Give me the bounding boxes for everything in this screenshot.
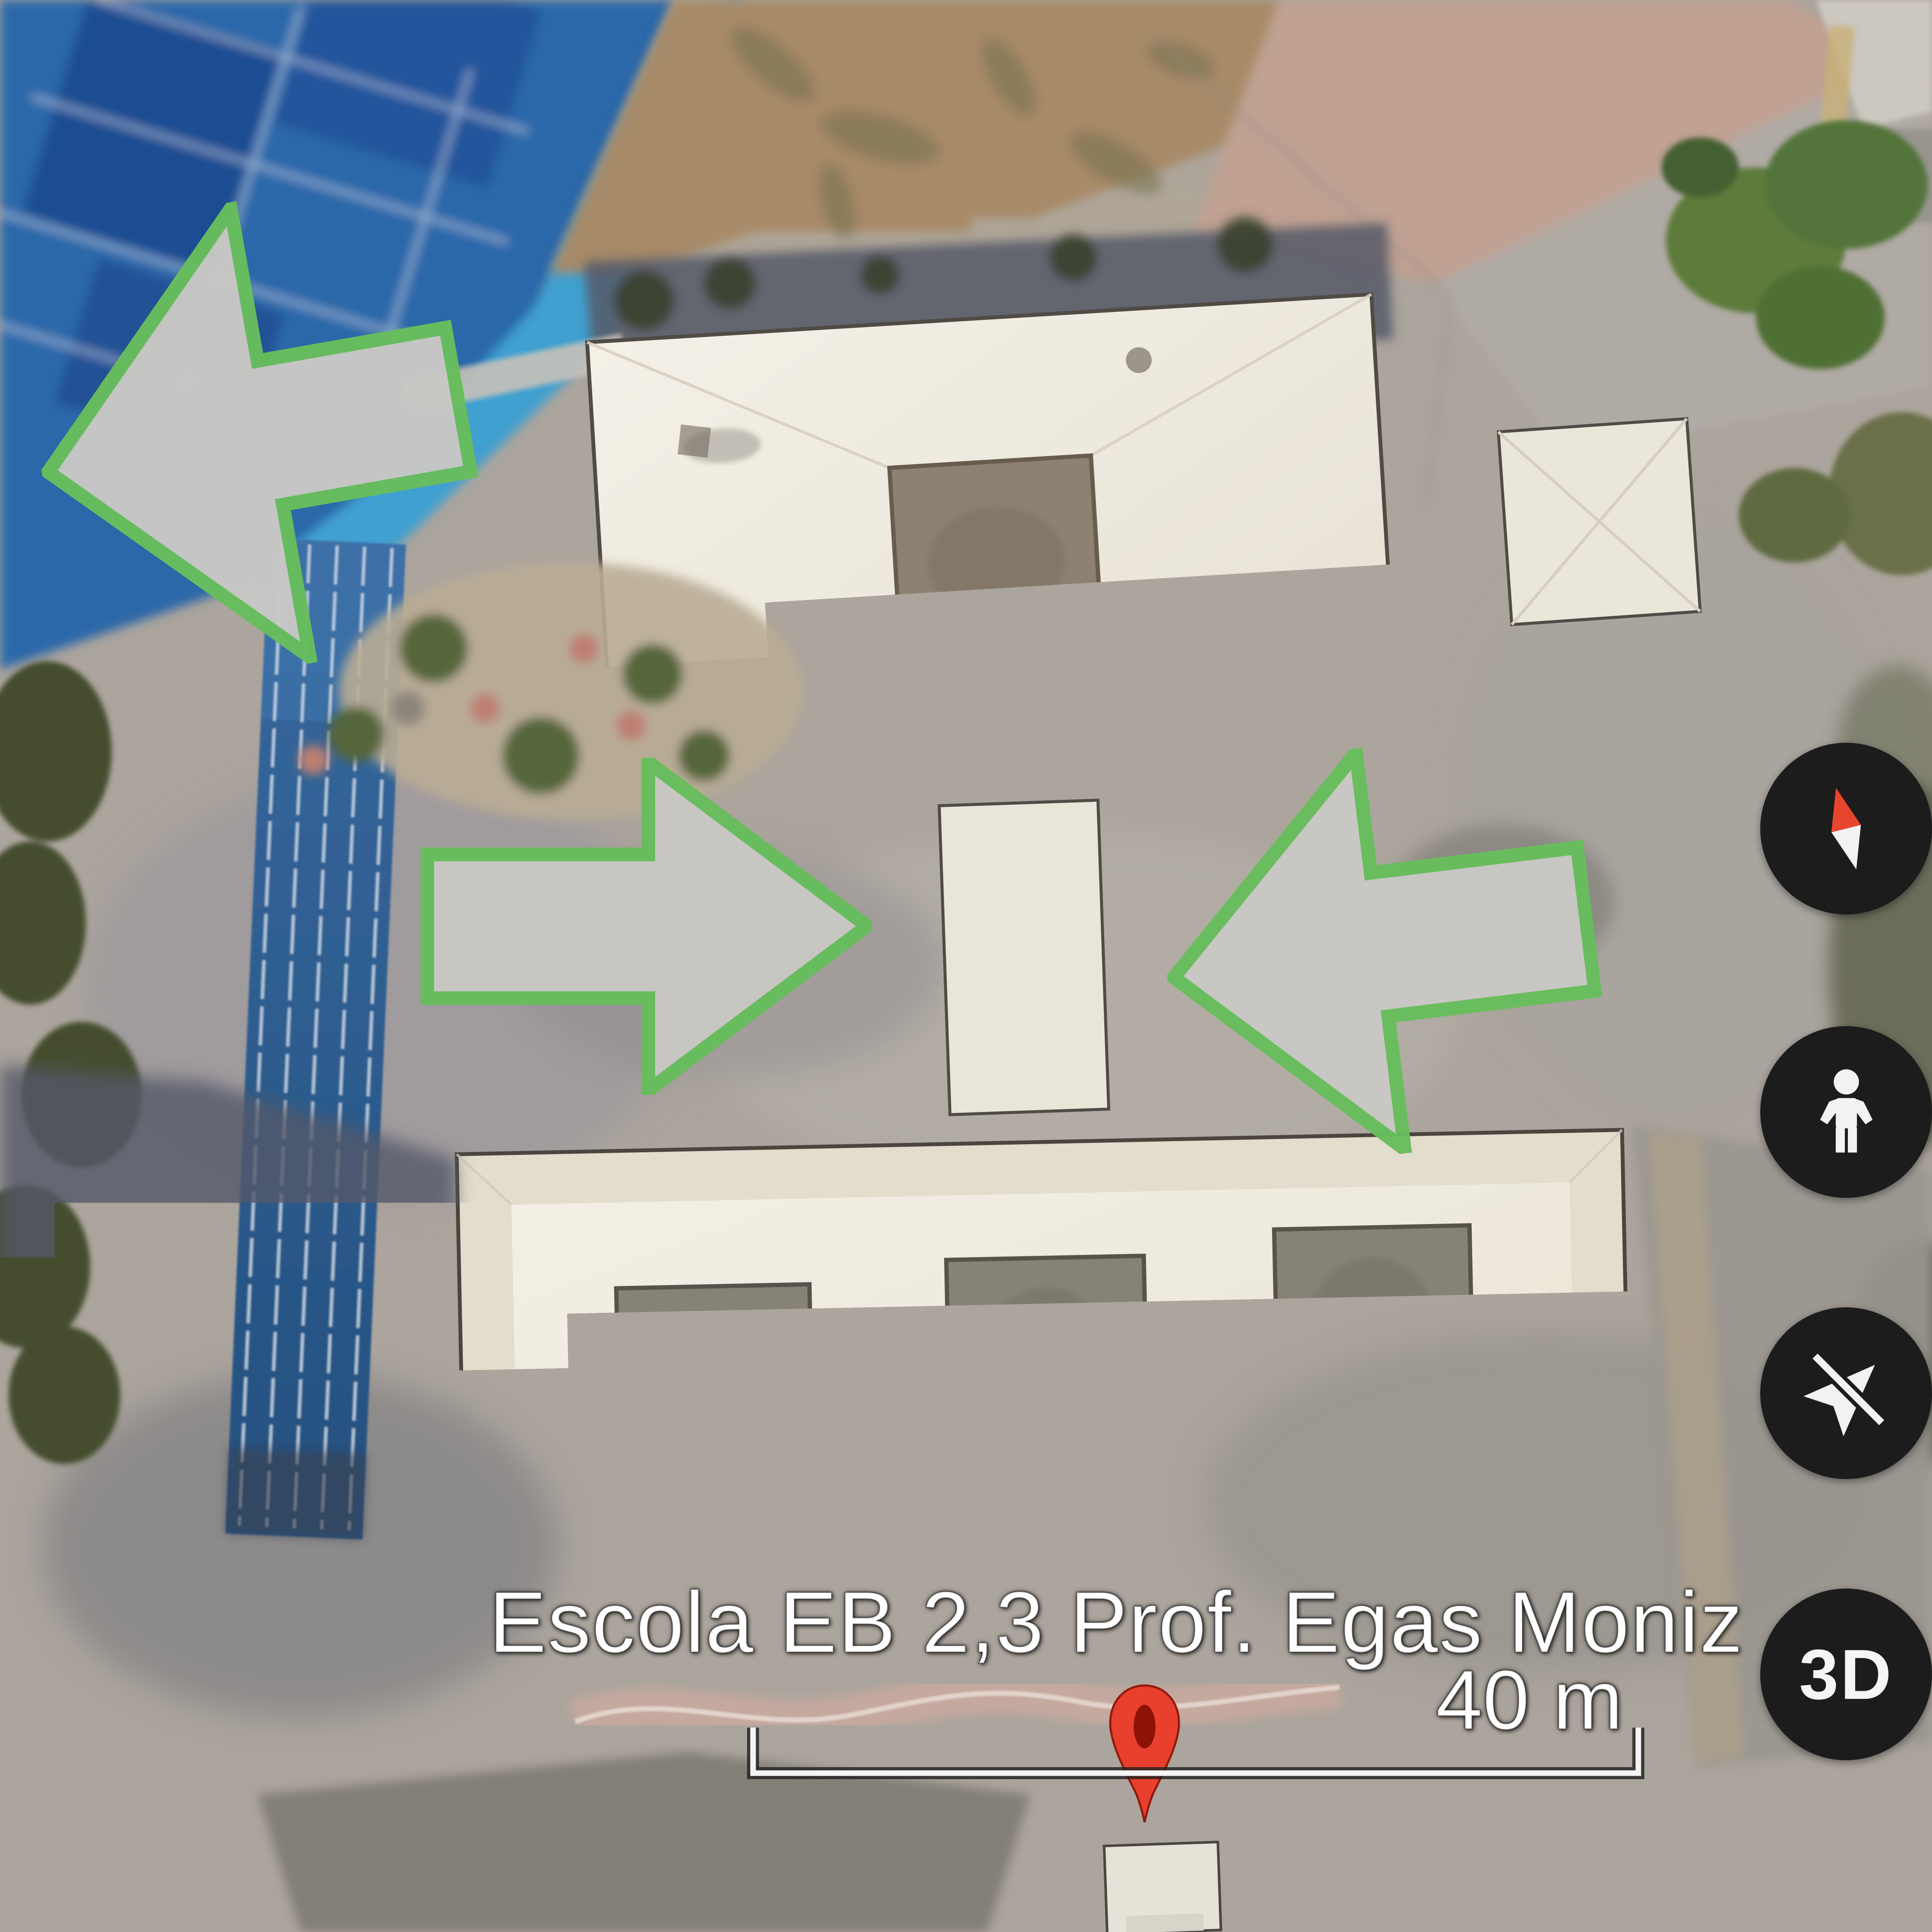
annotation-arrow-middle-left	[421, 758, 872, 1095]
compass-icon	[1792, 775, 1900, 882]
arrow-left-icon	[1149, 727, 1611, 1174]
arrow-right-icon	[427, 762, 867, 1091]
annotation-arrow-top-left	[1, 168, 505, 703]
annotation-arrow-middle-right	[1142, 723, 1618, 1180]
small-building-top-right	[1498, 419, 1700, 625]
3d-view-button[interactable]: 3D	[1760, 1589, 1932, 1760]
scale-bar	[747, 1725, 1644, 1781]
pegman-icon	[1796, 1062, 1897, 1163]
navigation-off-icon	[1796, 1343, 1897, 1444]
bottom-school-building	[457, 1130, 1632, 1633]
shadow-ground-bottom-left	[0, 1065, 462, 1769]
compass-button[interactable]	[1760, 743, 1932, 914]
3d-button-label: 3D	[1799, 1634, 1893, 1715]
navigation-off-button[interactable]	[1760, 1307, 1932, 1479]
pegman-button[interactable]	[1760, 1026, 1932, 1198]
small-structure-bottom-center	[1104, 1842, 1221, 1932]
arrow-left-icon	[9, 176, 498, 696]
satellite-map-view[interactable]: Escola EB 2,3 Prof. Egas Moniz 40 m	[0, 0, 1932, 1932]
connector-corridor	[939, 800, 1109, 1115]
